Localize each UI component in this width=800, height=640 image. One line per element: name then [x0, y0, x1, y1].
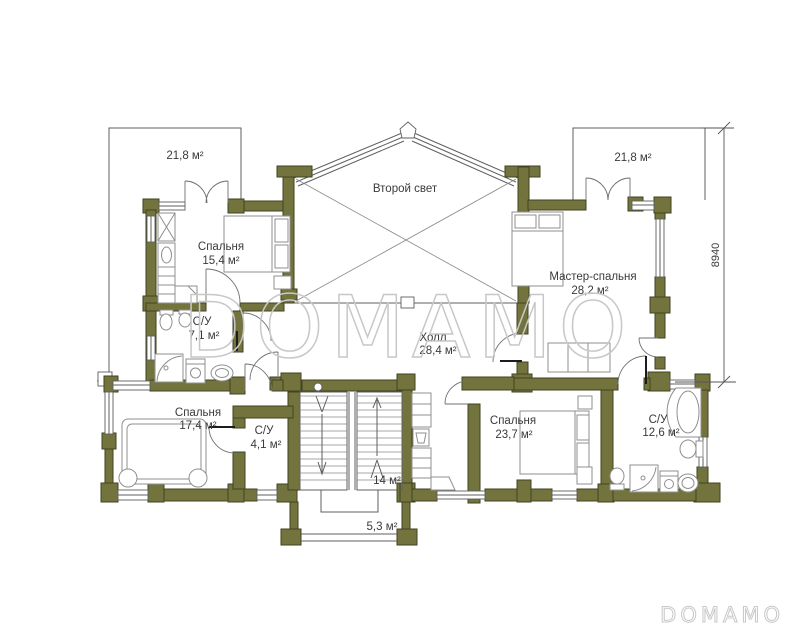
- floor-plan: 8940 21,8 м² Второй свет 21,8 м² Спальня…: [0, 0, 800, 640]
- pouf-icon: [189, 469, 207, 487]
- pillow-icon: [275, 219, 288, 242]
- hall-corridor-furniture: [412, 393, 455, 490]
- sink-icon: [211, 365, 233, 381]
- label-balcony-top-left: 21,8 м²: [166, 150, 203, 162]
- master-closet-door: [639, 338, 658, 357]
- ridge-marker: [400, 122, 416, 138]
- pillow-icon: [515, 215, 536, 228]
- nightstand-icon: [274, 276, 291, 289]
- washing-machine-icon: [186, 359, 205, 383]
- floor-plan-drawing: 8940 21,8 м² Второй свет 21,8 м² Спальня…: [0, 0, 800, 640]
- desk-icon: [175, 286, 197, 303]
- bathroom-3-door: [618, 356, 646, 384]
- pillow-icon: [275, 245, 288, 268]
- hall-window-marker: [401, 297, 414, 308]
- label-bedroom-1-area: 15,4 м²: [202, 255, 239, 267]
- label-second-light: Второй свет: [373, 183, 438, 195]
- label-bathroom-2-area: 4,1 м²: [251, 439, 282, 451]
- pillow-icon: [539, 215, 560, 228]
- balcony-bottom-railing: [301, 534, 397, 541]
- toilet-icon: [696, 441, 703, 457]
- label-bedroom-3-name: Спальня: [490, 415, 536, 427]
- label-bathroom-1-name: С/У: [193, 316, 213, 328]
- shelf-icon: [412, 448, 431, 478]
- master-bedroom-door: [493, 333, 522, 362]
- pillow-icon: [577, 443, 589, 468]
- label-bedroom-2-area: 17,4 м²: [179, 420, 216, 432]
- wardrobe-icon: [412, 393, 431, 427]
- balcony-double-door-left: [185, 181, 228, 203]
- label-bedroom-3-area: 23,7 м²: [495, 429, 532, 441]
- label-master-area: 28,2 м²: [571, 285, 608, 297]
- bedroom-1-door: [206, 269, 240, 303]
- bench-icon: [431, 477, 455, 490]
- bedroom-2-entry-door: [245, 364, 272, 391]
- label-bedroom-2-name: Спальня: [175, 407, 221, 419]
- label-bedroom-1-name: Спальня: [198, 241, 244, 253]
- stairs-down-arrow: [316, 396, 328, 474]
- label-bathroom-3-name: С/У: [649, 414, 669, 426]
- newel-post-marker: [314, 383, 322, 391]
- balcony-double-door-right: [586, 178, 630, 200]
- balcony-top-right-outline: [573, 128, 705, 200]
- label-bathroom-1-area: 7,1 м²: [189, 330, 220, 342]
- pouf-icon: [119, 469, 137, 487]
- label-bathroom-3-area: 12,6 м²: [642, 427, 679, 439]
- bathroom-3-fixtures: [610, 388, 703, 492]
- dimension-value: 8940: [710, 243, 722, 267]
- label-hall-area: 28,4 м²: [419, 345, 456, 357]
- shower-icon: [630, 465, 658, 492]
- roof-gable: [294, 122, 518, 186]
- label-hall-name: Холл: [419, 332, 446, 344]
- label-balcony-bottom-area: 5,3 м²: [367, 521, 398, 533]
- bidet-icon: [610, 468, 624, 484]
- sink-icon: [678, 474, 698, 492]
- shower-icon: [155, 354, 183, 382]
- label-master-name: Мастер-спальня: [549, 271, 636, 283]
- label-bathroom-2-name: С/У: [255, 425, 275, 437]
- label-balcony-top-right: 21,8 м²: [614, 152, 651, 164]
- second-light-void-cross: [294, 179, 518, 308]
- stairs-icon: [300, 383, 402, 512]
- wardrobe-icon: [548, 343, 610, 372]
- pillow-icon: [577, 415, 589, 440]
- walls: [101, 166, 720, 545]
- label-stairs-area: 14 м²: [373, 475, 401, 487]
- nightstand-icon: [577, 467, 592, 484]
- nightstand-icon: [578, 396, 592, 409]
